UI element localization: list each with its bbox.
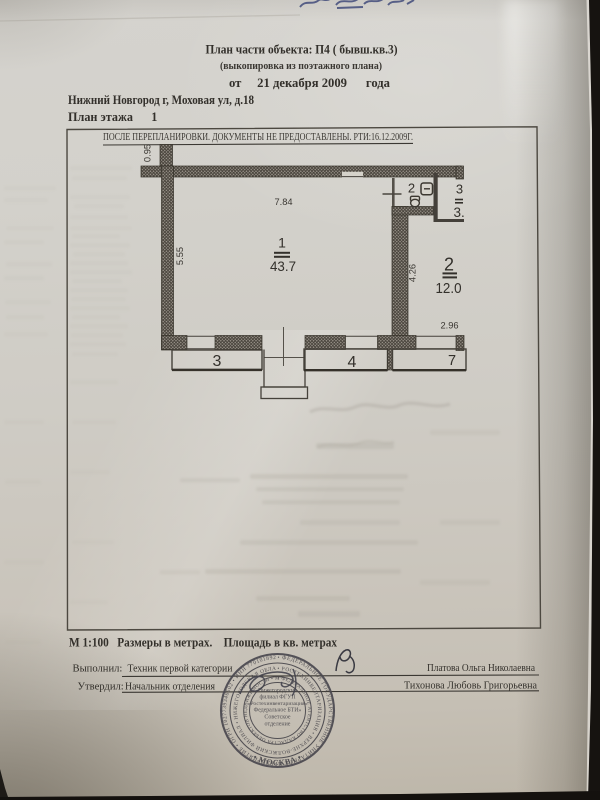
svg-text:0.95: 0.95 xyxy=(143,144,153,162)
svg-text:Тихонова Любовь Григорьевна: Тихонова Любовь Григорьевна xyxy=(404,681,537,692)
svg-text:Нижний Новгород г, Моховая ул,: Нижний Новгород г, Моховая ул, д.18 xyxy=(68,93,254,107)
svg-text:План этажа 1: План этажа 1 xyxy=(68,110,157,124)
svg-text:от 21 декабря 2009 г: от 21 декабря 2009 года xyxy=(229,76,390,90)
svg-text:4: 4 xyxy=(348,354,357,371)
svg-text:Начальник отделения: Начальник отделения xyxy=(125,682,215,693)
svg-text:ПОСЛЕ ПЕРЕПЛАНИРОВКИ. ДОКУМЕНТ: ПОСЛЕ ПЕРЕПЛАНИРОВКИ. ДОКУМЕНТЫ НЕ ПРЕДО… xyxy=(103,131,413,143)
svg-text:3.: 3. xyxy=(454,205,465,220)
svg-text:М 1:100 Размеры в метрах.: М 1:100 Размеры в метрах. Площадь в кв. … xyxy=(69,636,338,650)
svg-text:2: 2 xyxy=(408,181,415,196)
svg-text:Выполнил:: Выполнил: xyxy=(73,664,123,675)
svg-text:«Ростехинвентаризация»: «Ростехинвентаризация» xyxy=(248,701,308,707)
svg-text:Нижегородский: Нижегородский xyxy=(258,687,297,694)
svg-text:43.7: 43.7 xyxy=(270,258,296,274)
svg-text:7.84: 7.84 xyxy=(274,197,292,207)
svg-text:(выкопировка из поэтажного пл: (выкопировка из поэтажного плана) xyxy=(220,61,382,72)
svg-text:Техник первой категории: Техник первой категории xyxy=(128,664,233,675)
svg-text:Советское: Советское xyxy=(264,715,291,721)
svg-text:7: 7 xyxy=(448,353,456,369)
svg-text:отделение: отделение xyxy=(265,722,291,728)
svg-text:2: 2 xyxy=(444,255,454,275)
svg-text:• ФЕДЕРАЛЬНОЕ ГОСУДАРСТВЕННОЕ: • ФЕДЕРАЛЬНОЕ ГОСУДАРСТВЕННОЕ УНИТАРНОЕ … xyxy=(0,0,333,766)
svg-text:Утвердил:: Утвердил: xyxy=(78,682,124,693)
svg-text:1: 1 xyxy=(278,235,286,251)
svg-text:3: 3 xyxy=(213,353,222,370)
svg-text:3: 3 xyxy=(456,182,463,197)
svg-text:2.96: 2.96 xyxy=(440,321,458,331)
svg-text:План части объекта: П4 ( бывш: План части объекта: П4 ( бывш.кв.3) xyxy=(206,43,398,57)
svg-text:4.26: 4.26 xyxy=(408,264,418,282)
svg-text:филиал ФГУП: филиал ФГУП xyxy=(259,694,296,701)
svg-text:5.55: 5.55 xyxy=(175,247,185,265)
svg-text:Федеральное БТИ»: Федеральное БТИ» xyxy=(254,708,302,714)
svg-text:12.0: 12.0 xyxy=(436,280,462,297)
svg-text:Платова Ольга Николаевна: Платова Ольга Николаевна xyxy=(427,663,535,674)
